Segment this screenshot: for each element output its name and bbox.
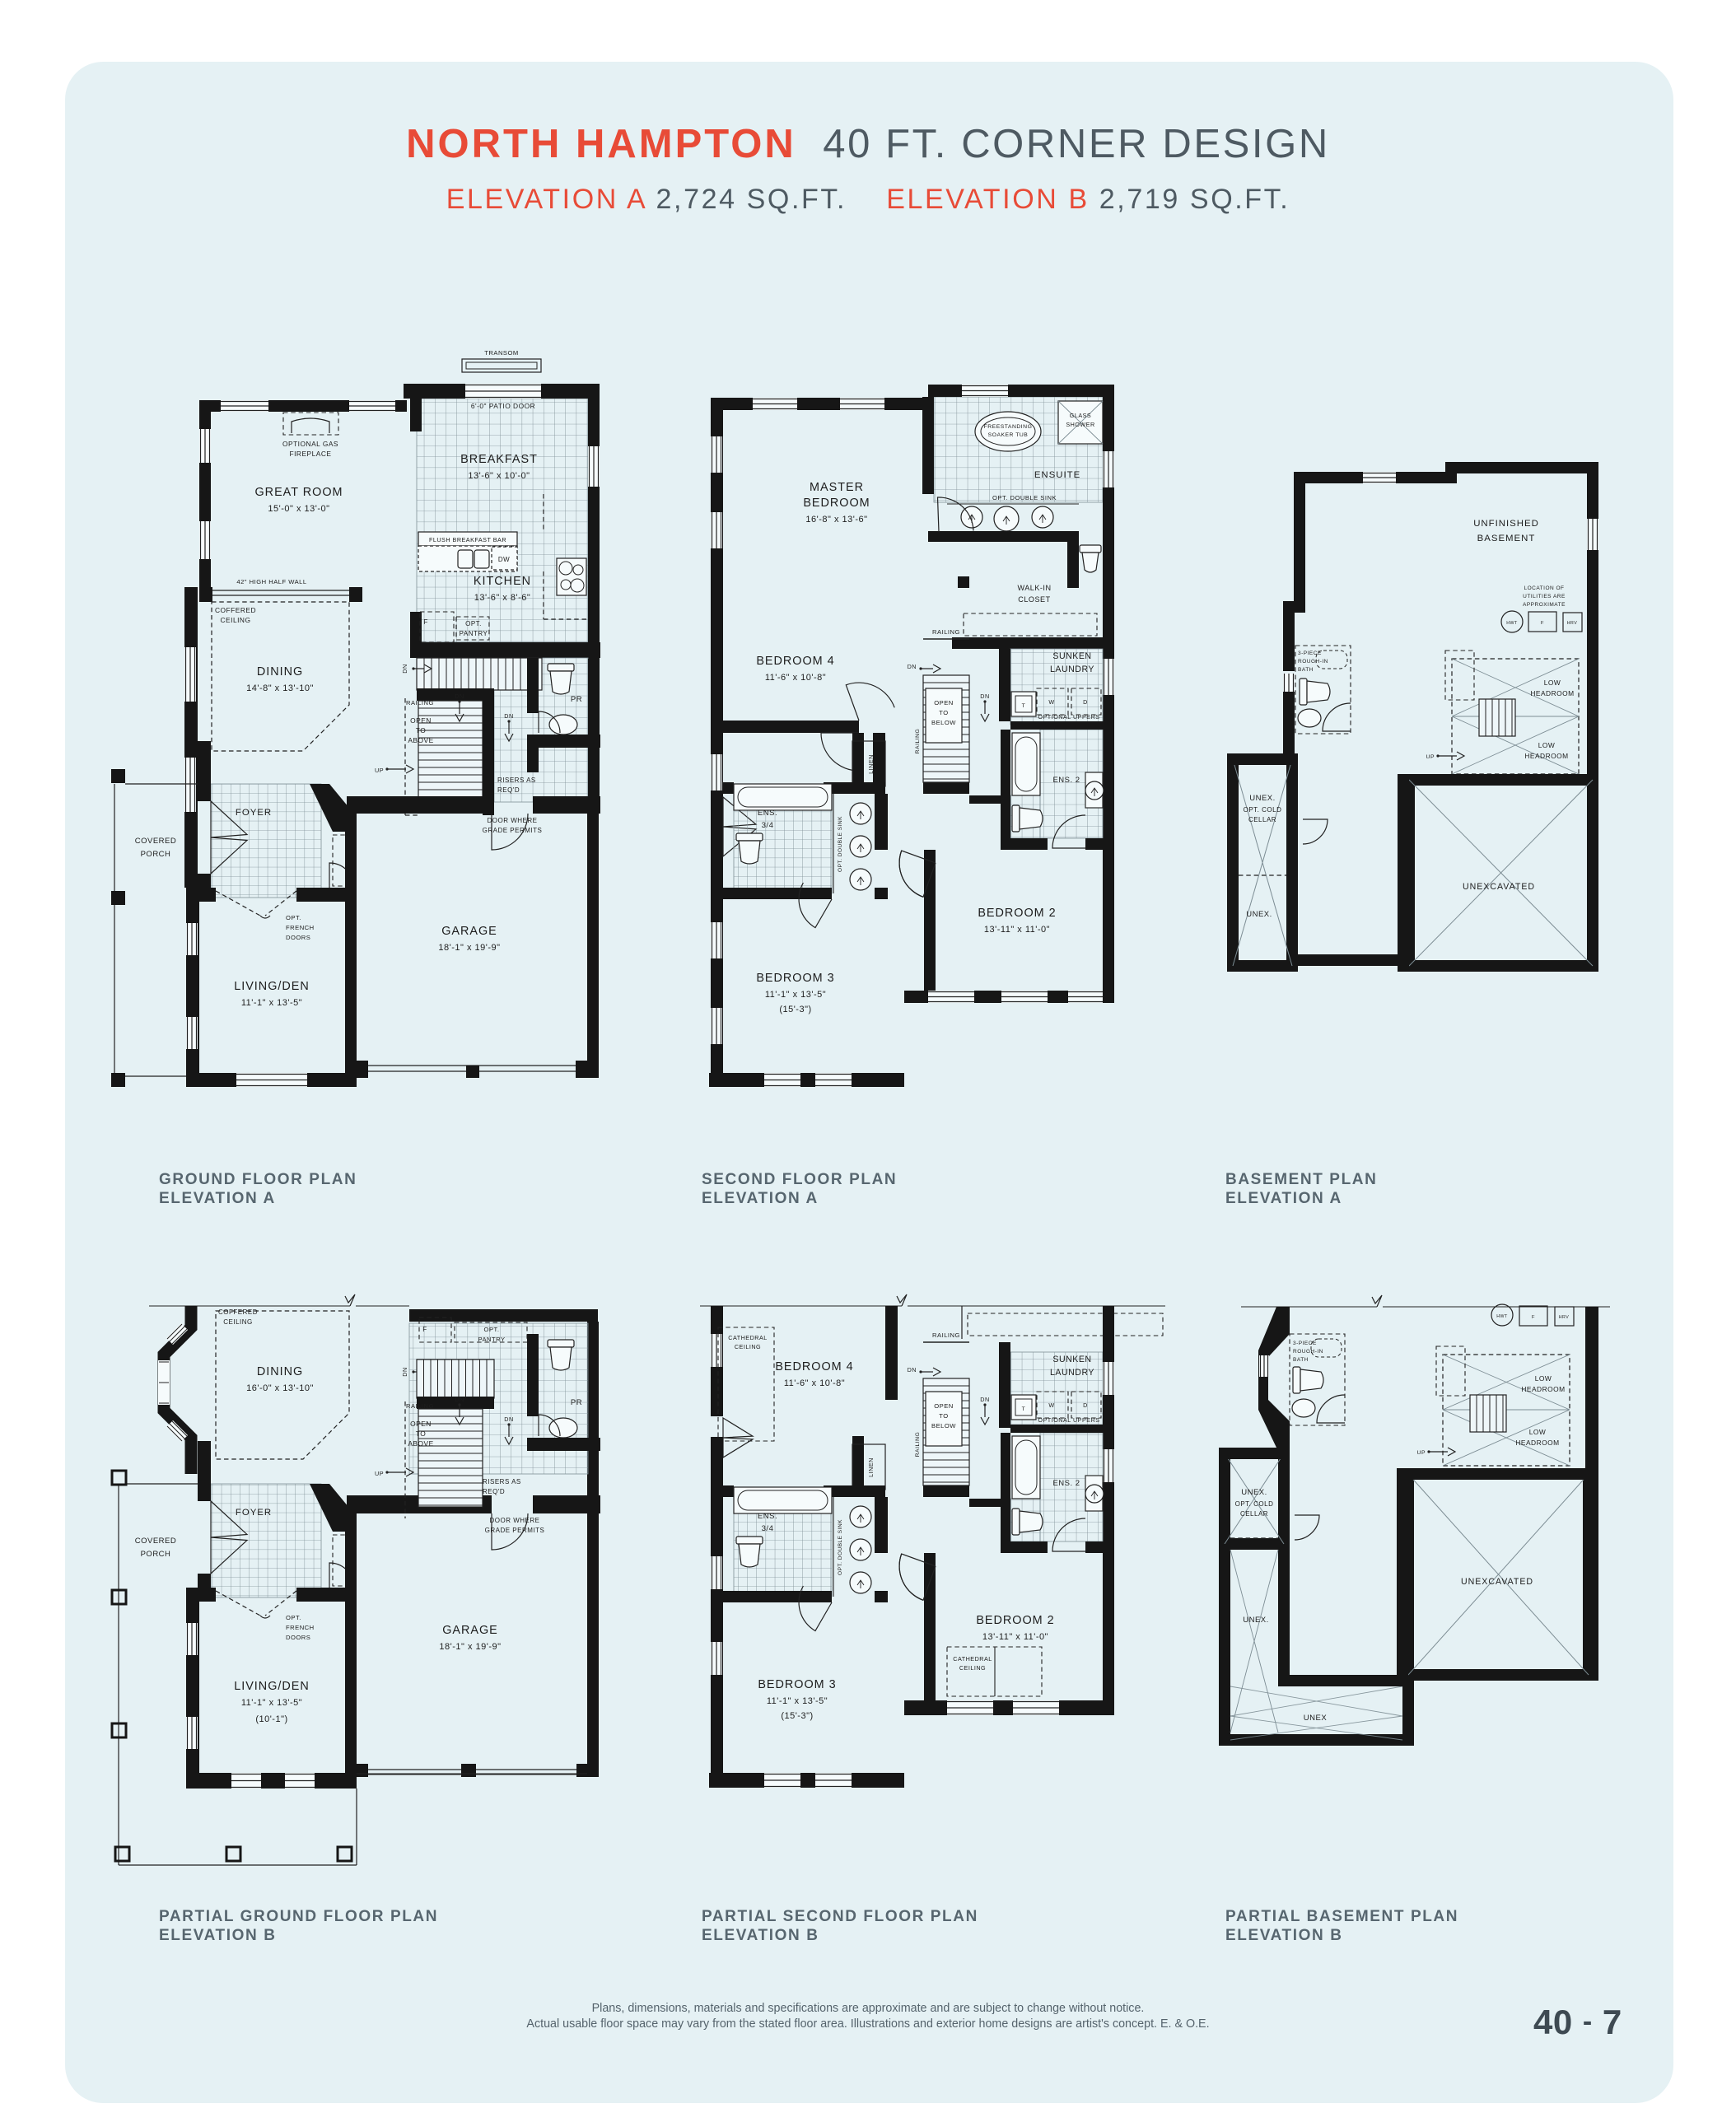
svg-text:HEADROOM: HEADROOM <box>1524 752 1568 760</box>
svg-text:TO: TO <box>939 1412 948 1420</box>
svg-text:OPEN: OPEN <box>934 1402 954 1410</box>
svg-text:13'-11" x 11'-0": 13'-11" x 11'-0" <box>984 925 1050 935</box>
svg-text:HEADROOM: HEADROOM <box>1530 689 1574 697</box>
svg-text:DN: DN <box>908 663 917 670</box>
svg-text:SUNKEN: SUNKEN <box>1052 1355 1091 1364</box>
svg-text:13'-11" x 11'-0": 13'-11" x 11'-0" <box>982 1632 1048 1642</box>
svg-text:ENS. 2: ENS. 2 <box>1052 1479 1080 1488</box>
svg-text:TRANSOM: TRANSOM <box>484 350 518 357</box>
svg-text:RAILING: RAILING <box>932 628 960 636</box>
svg-text:(10'-1"): (10'-1") <box>255 1714 287 1724</box>
svg-text:LOW: LOW <box>1538 741 1556 749</box>
svg-text:UP: UP <box>1417 1450 1426 1456</box>
svg-text:DOOR WHERE: DOOR WHERE <box>490 1517 540 1524</box>
svg-text:14'-8" x 13'-10": 14'-8" x 13'-10" <box>246 683 314 693</box>
svg-text:BEDROOM 2: BEDROOM 2 <box>976 1614 1054 1627</box>
svg-text:GARAGE: GARAGE <box>442 1624 498 1637</box>
svg-text:OPEN: OPEN <box>410 716 432 725</box>
svg-text:F: F <box>1532 1315 1535 1320</box>
svg-text:GLASS: GLASS <box>1070 412 1091 419</box>
svg-text:LIVING/DEN: LIVING/DEN <box>234 1680 310 1693</box>
svg-text:11'-1" x 13'-5": 11'-1" x 13'-5" <box>241 1698 302 1708</box>
svg-text:UNEX.: UNEX. <box>1241 1488 1267 1497</box>
svg-text:3-PIECE: 3-PIECE <box>1293 1341 1317 1346</box>
svg-text:16'-0" x 13'-10": 16'-0" x 13'-10" <box>246 1383 314 1393</box>
svg-text:UNEX: UNEX <box>1304 1714 1328 1723</box>
svg-text:RAILING: RAILING <box>915 1432 921 1457</box>
svg-text:ENS. 2: ENS. 2 <box>1052 776 1080 785</box>
svg-text:F: F <box>1541 621 1544 626</box>
svg-text:FIREPLACE: FIREPLACE <box>289 450 331 458</box>
svg-text:CEILING: CEILING <box>220 616 250 624</box>
svg-text:REQ'D: REQ'D <box>483 1488 505 1495</box>
svg-text:ROUGH-IN: ROUGH-IN <box>1293 1349 1323 1355</box>
svg-text:CEILING: CEILING <box>959 1664 986 1672</box>
svg-text:42" HIGH HALF WALL: 42" HIGH HALF WALL <box>236 578 306 585</box>
svg-text:13'-6" x 8'-6": 13'-6" x 8'-6" <box>474 593 531 603</box>
svg-text:PANTRY: PANTRY <box>460 630 488 637</box>
svg-text:RAILING: RAILING <box>915 729 921 754</box>
svg-text:OPEN: OPEN <box>410 1420 432 1428</box>
svg-text:DN: DN <box>980 1396 989 1403</box>
svg-text:F: F <box>422 1326 427 1333</box>
svg-text:HWT: HWT <box>1506 621 1518 626</box>
svg-text:DN: DN <box>504 1415 513 1423</box>
svg-text:BREAKFAST: BREAKFAST <box>460 453 538 466</box>
svg-text:CEILING: CEILING <box>735 1343 761 1350</box>
svg-text:6'-0" PATIO DOOR: 6'-0" PATIO DOOR <box>471 402 535 410</box>
svg-text:HRV: HRV <box>1559 1315 1570 1320</box>
svg-text:OPEN: OPEN <box>934 699 954 707</box>
svg-text:OPTIONAL GAS: OPTIONAL GAS <box>282 440 338 448</box>
svg-text:3/4: 3/4 <box>762 1524 774 1533</box>
svg-text:GRADE PERMITS: GRADE PERMITS <box>483 827 543 834</box>
svg-text:FOYER: FOYER <box>236 1508 272 1518</box>
svg-text:OPTIONAL UPPERS: OPTIONAL UPPERS <box>1038 713 1099 721</box>
svg-text:DOORS: DOORS <box>286 934 310 941</box>
svg-text:11'-6" x 10'-8": 11'-6" x 10'-8" <box>765 673 826 683</box>
svg-text:PORCH: PORCH <box>141 1550 171 1559</box>
svg-text:OPT.: OPT. <box>286 914 301 921</box>
svg-text:LAUNDRY: LAUNDRY <box>1050 1368 1094 1378</box>
svg-text:OPT.: OPT. <box>286 1614 301 1621</box>
svg-text:18'-1" x 19'-9": 18'-1" x 19'-9" <box>439 1642 501 1652</box>
svg-text:PR: PR <box>571 695 582 704</box>
svg-text:UNEX.: UNEX. <box>1243 1616 1269 1625</box>
svg-text:CATHEDRAL: CATHEDRAL <box>728 1334 768 1341</box>
svg-text:OPT. DOUBLE SINK: OPT. DOUBLE SINK <box>992 494 1057 501</box>
svg-text:LOW: LOW <box>1535 1374 1552 1383</box>
svg-text:DN: DN <box>401 1367 408 1376</box>
svg-text:15'-0" x 13'-0": 15'-0" x 13'-0" <box>268 504 329 514</box>
svg-text:D: D <box>1083 698 1088 706</box>
svg-text:BEDROOM 3: BEDROOM 3 <box>756 972 834 985</box>
svg-text:TO: TO <box>416 726 426 735</box>
svg-text:RAILING: RAILING <box>406 1402 434 1410</box>
svg-text:ENSUITE: ENSUITE <box>1034 470 1080 480</box>
svg-text:BEDROOM 3: BEDROOM 3 <box>758 1678 836 1691</box>
svg-text:UNEX.: UNEX. <box>1249 794 1276 803</box>
svg-text:FRENCH: FRENCH <box>286 1624 315 1631</box>
svg-text:W: W <box>1048 1401 1054 1409</box>
svg-text:OPT. COLD: OPT. COLD <box>1244 806 1282 814</box>
svg-text:BATH: BATH <box>1293 1357 1309 1363</box>
svg-text:GREAT ROOM: GREAT ROOM <box>254 486 343 499</box>
svg-text:DN: DN <box>908 1366 917 1373</box>
svg-text:ABOVE: ABOVE <box>408 736 433 744</box>
svg-text:CELLAR: CELLAR <box>1240 1510 1268 1518</box>
svg-text:OPT.: OPT. <box>484 1326 500 1333</box>
svg-text:TO: TO <box>939 709 948 716</box>
svg-text:16'-8" x 13'-6": 16'-8" x 13'-6" <box>805 515 867 525</box>
svg-text:DN: DN <box>504 712 513 720</box>
svg-text:DINING: DINING <box>257 1365 303 1378</box>
svg-text:COFFERED: COFFERED <box>218 1308 258 1316</box>
svg-text:FOYER: FOYER <box>236 808 272 818</box>
svg-text:PORCH: PORCH <box>141 850 171 859</box>
svg-text:LIVING/DEN: LIVING/DEN <box>234 980 310 993</box>
svg-text:RISERS AS: RISERS AS <box>497 777 536 784</box>
svg-text:D: D <box>1083 1401 1088 1409</box>
svg-text:18'-1" x 19'-9": 18'-1" x 19'-9" <box>438 943 500 953</box>
svg-text:GRADE PERMITS: GRADE PERMITS <box>485 1527 545 1534</box>
svg-text:UNEX.: UNEX. <box>1246 910 1272 919</box>
svg-text:FREESTANDING: FREESTANDING <box>984 424 1033 430</box>
svg-text:PANTRY: PANTRY <box>478 1336 505 1343</box>
svg-text:11'-6" x 10'-8": 11'-6" x 10'-8" <box>784 1378 845 1388</box>
svg-text:UNEXCAVATED: UNEXCAVATED <box>1463 882 1535 892</box>
svg-text:DOOR WHERE: DOOR WHERE <box>488 817 538 824</box>
svg-text:RAILING: RAILING <box>406 699 434 707</box>
svg-text:DN: DN <box>980 693 989 700</box>
svg-text:13'-6" x 10'-0": 13'-6" x 10'-0" <box>468 471 530 481</box>
svg-text:BASEMENT: BASEMENT <box>1477 534 1536 543</box>
svg-text:11'-1" x 13'-5": 11'-1" x 13'-5" <box>241 998 302 1008</box>
svg-text:F: F <box>423 618 428 626</box>
svg-text:OPT. COLD: OPT. COLD <box>1235 1500 1274 1508</box>
svg-text:ROUGH-IN: ROUGH-IN <box>1298 659 1328 665</box>
svg-text:11'-1" x 13'-5": 11'-1" x 13'-5" <box>765 990 826 1000</box>
svg-text:COVERED: COVERED <box>135 1537 176 1546</box>
svg-text:MASTER: MASTER <box>810 481 864 494</box>
svg-text:UNFINISHED: UNFINISHED <box>1473 519 1539 529</box>
svg-text:OPT. DOUBLE SINK: OPT. DOUBLE SINK <box>838 816 843 872</box>
svg-text:CLOSET: CLOSET <box>1018 595 1050 604</box>
svg-text:COFFERED: COFFERED <box>215 606 256 614</box>
svg-text:UP: UP <box>1426 754 1435 760</box>
svg-text:(15'-3"): (15'-3") <box>779 1005 811 1014</box>
svg-text:CELLAR: CELLAR <box>1248 816 1276 823</box>
svg-text:SUNKEN: SUNKEN <box>1052 651 1091 661</box>
svg-text:OPT. DOUBLE SINK: OPT. DOUBLE SINK <box>838 1519 843 1575</box>
svg-text:LOW: LOW <box>1529 1428 1547 1436</box>
svg-text:BEDROOM 4: BEDROOM 4 <box>756 655 834 668</box>
svg-text:WALK-IN: WALK-IN <box>1017 584 1051 592</box>
svg-text:HWT: HWT <box>1496 1314 1508 1319</box>
svg-text:DN: DN <box>401 664 408 673</box>
svg-text:SOAKER TUB: SOAKER TUB <box>988 432 1029 438</box>
svg-text:ABOVE: ABOVE <box>408 1439 433 1448</box>
svg-text:HEADROOM: HEADROOM <box>1521 1385 1565 1393</box>
svg-text:KITCHEN: KITCHEN <box>474 575 531 588</box>
svg-text:LINEN: LINEN <box>867 1457 875 1477</box>
svg-text:PR: PR <box>571 1398 582 1407</box>
svg-text:BELOW: BELOW <box>931 1422 956 1429</box>
svg-text:UP: UP <box>375 767 384 774</box>
svg-text:LOCATION OF: LOCATION OF <box>1524 585 1564 591</box>
svg-text:RAILING: RAILING <box>932 1331 960 1339</box>
svg-text:ENS.: ENS. <box>758 809 777 818</box>
svg-text:OPTIONAL UPPERS: OPTIONAL UPPERS <box>1038 1416 1099 1424</box>
svg-text:COVERED: COVERED <box>135 837 176 846</box>
svg-text:3-PIECE: 3-PIECE <box>1298 651 1322 656</box>
svg-text:W: W <box>1048 698 1054 706</box>
svg-text:RISERS AS: RISERS AS <box>483 1478 521 1485</box>
svg-text:GARAGE: GARAGE <box>441 925 497 938</box>
svg-text:BEDROOM 2: BEDROOM 2 <box>978 907 1056 920</box>
svg-text:HEADROOM: HEADROOM <box>1515 1439 1559 1447</box>
svg-text:UNEXCAVATED: UNEXCAVATED <box>1461 1577 1533 1587</box>
svg-text:3/4: 3/4 <box>762 821 774 830</box>
svg-text:BATH: BATH <box>1298 667 1314 673</box>
svg-text:CATHEDRAL: CATHEDRAL <box>953 1655 992 1663</box>
svg-text:LAUNDRY: LAUNDRY <box>1050 665 1094 674</box>
svg-text:BEDROOM 4: BEDROOM 4 <box>775 1360 853 1373</box>
svg-text:HRV: HRV <box>1567 621 1578 626</box>
svg-text:SHOWER: SHOWER <box>1066 421 1094 428</box>
svg-text:T: T <box>1022 1406 1026 1412</box>
svg-text:UTILITIES ARE: UTILITIES ARE <box>1523 594 1566 599</box>
svg-text:REQ'D: REQ'D <box>497 786 520 794</box>
svg-text:FRENCH: FRENCH <box>286 924 315 931</box>
svg-text:DN: DN <box>455 693 464 700</box>
svg-text:FLUSH BREAKFAST BAR: FLUSH BREAKFAST BAR <box>429 536 506 543</box>
svg-text:BELOW: BELOW <box>931 719 956 726</box>
svg-text:T: T <box>1022 703 1026 709</box>
svg-text:LINEN: LINEN <box>867 754 875 774</box>
svg-text:BEDROOM: BEDROOM <box>803 497 870 510</box>
svg-text:DOORS: DOORS <box>286 1634 310 1641</box>
svg-text:OPT.: OPT. <box>465 620 482 627</box>
svg-text:CEILING: CEILING <box>223 1318 253 1326</box>
svg-text:(15'-3"): (15'-3") <box>781 1711 813 1721</box>
svg-text:TO: TO <box>416 1429 426 1438</box>
svg-text:ENS.: ENS. <box>758 1512 777 1521</box>
svg-text:DINING: DINING <box>257 665 303 679</box>
svg-text:DW: DW <box>498 556 510 563</box>
svg-text:DN: DN <box>455 1396 464 1403</box>
svg-text:11'-1" x 13'-5": 11'-1" x 13'-5" <box>767 1696 828 1706</box>
svg-text:UP: UP <box>375 1470 384 1477</box>
svg-text:APPROXIMATE: APPROXIMATE <box>1523 602 1566 608</box>
svg-text:LOW: LOW <box>1544 679 1561 687</box>
